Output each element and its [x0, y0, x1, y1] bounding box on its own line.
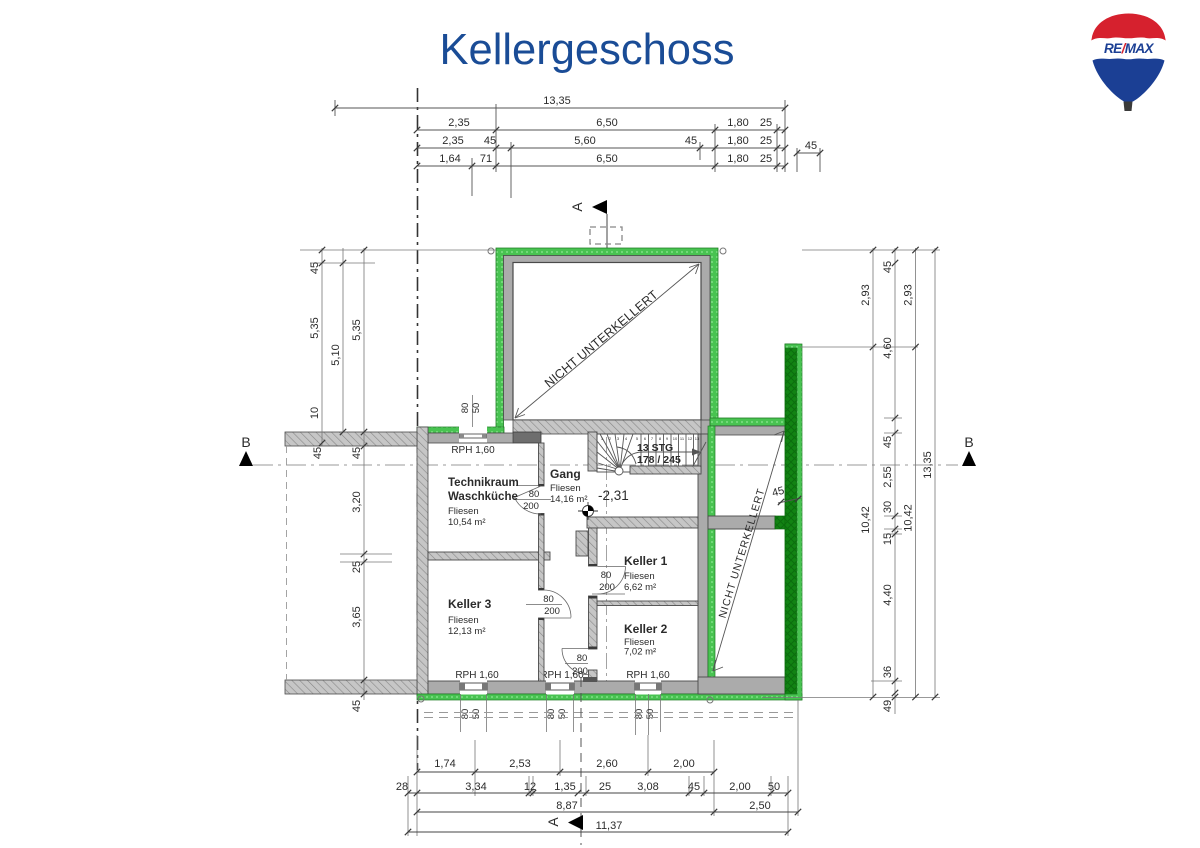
svg-text:2: 2 [609, 436, 612, 441]
svg-text:Technikraum: Technikraum [448, 477, 519, 489]
svg-text:80: 80 [577, 653, 588, 664]
svg-text:1,80: 1,80 [727, 117, 748, 129]
svg-text:10: 10 [309, 407, 321, 419]
svg-text:25: 25 [760, 117, 772, 129]
svg-text:6,62 m²: 6,62 m² [624, 582, 656, 593]
svg-text:8: 8 [659, 436, 662, 441]
svg-text:1,35: 1,35 [554, 781, 575, 793]
svg-text:13,35: 13,35 [543, 95, 571, 107]
svg-text:15: 15 [882, 533, 894, 545]
svg-text:45: 45 [351, 700, 363, 712]
svg-text:12,13 m²: 12,13 m² [448, 626, 486, 637]
svg-text:5: 5 [636, 436, 639, 441]
svg-text:45: 45 [688, 781, 700, 793]
svg-text:71: 71 [480, 153, 492, 165]
svg-text:2,53: 2,53 [509, 758, 530, 770]
svg-text:Fliesen: Fliesen [550, 483, 581, 494]
svg-text:2,50: 2,50 [749, 800, 770, 812]
svg-text:50: 50 [768, 781, 780, 793]
svg-text:13: 13 [695, 436, 700, 441]
svg-text:200: 200 [523, 501, 539, 512]
svg-text:Fliesen: Fliesen [448, 506, 479, 517]
svg-text:B: B [964, 434, 973, 450]
svg-text:4: 4 [625, 436, 628, 441]
svg-text:45: 45 [685, 135, 697, 147]
svg-text:36: 36 [882, 666, 894, 678]
svg-text:8,87: 8,87 [556, 800, 577, 812]
svg-text:10,42: 10,42 [860, 506, 872, 534]
svg-text:5,10: 5,10 [330, 344, 342, 365]
svg-text:25: 25 [599, 781, 611, 793]
svg-text:10,54 m²: 10,54 m² [448, 517, 486, 528]
svg-text:25: 25 [760, 135, 772, 147]
svg-text:30: 30 [882, 501, 894, 513]
svg-text:3,20: 3,20 [351, 491, 363, 512]
svg-text:178 / 245: 178 / 245 [637, 454, 681, 466]
svg-text:80: 80 [460, 403, 471, 414]
svg-text:4,40: 4,40 [882, 584, 894, 605]
svg-text:14,16 m²: 14,16 m² [550, 494, 588, 505]
svg-text:12: 12 [524, 781, 536, 793]
svg-text:11,37: 11,37 [596, 820, 623, 832]
svg-text:28: 28 [396, 781, 408, 793]
svg-text:45: 45 [309, 262, 321, 274]
svg-text:5,35: 5,35 [351, 319, 363, 340]
svg-text:45: 45 [882, 436, 894, 448]
svg-text:9: 9 [666, 436, 669, 441]
svg-text:6,50: 6,50 [596, 117, 617, 129]
svg-text:B: B [241, 434, 250, 450]
svg-text:RPH 1,60: RPH 1,60 [455, 670, 499, 681]
svg-text:13 STG: 13 STG [637, 442, 673, 454]
svg-text:2,55: 2,55 [882, 466, 894, 487]
svg-text:13,35: 13,35 [922, 451, 934, 479]
svg-text:2,60: 2,60 [596, 758, 617, 770]
svg-text:200: 200 [544, 606, 560, 617]
svg-text:2,00: 2,00 [673, 758, 694, 770]
svg-text:RPH 1,60: RPH 1,60 [451, 445, 495, 456]
svg-text:45: 45 [484, 135, 496, 147]
svg-text:11: 11 [680, 436, 685, 441]
svg-text:6: 6 [644, 436, 647, 441]
svg-text:2,35: 2,35 [442, 135, 463, 147]
svg-text:7: 7 [651, 436, 654, 441]
svg-text:Fliesen: Fliesen [448, 615, 479, 626]
svg-text:Fliesen: Fliesen [624, 571, 655, 582]
svg-text:200: 200 [572, 666, 588, 677]
svg-text:45: 45 [351, 447, 363, 459]
svg-text:80: 80 [543, 594, 554, 605]
svg-text:A: A [569, 202, 585, 212]
svg-text:2,93: 2,93 [903, 284, 915, 305]
svg-text:12: 12 [688, 436, 693, 441]
svg-text:10: 10 [673, 436, 678, 441]
svg-text:5,35: 5,35 [309, 317, 321, 338]
svg-text:2,93: 2,93 [860, 284, 872, 305]
svg-text:50: 50 [471, 403, 482, 414]
svg-text:4,60: 4,60 [882, 337, 894, 358]
svg-text:3,08: 3,08 [637, 781, 658, 793]
svg-text:Gang: Gang [550, 467, 581, 481]
svg-text:Keller 1: Keller 1 [624, 554, 668, 568]
svg-text:2,00: 2,00 [729, 781, 750, 793]
svg-text:80: 80 [529, 489, 540, 500]
svg-text:6,50: 6,50 [596, 153, 617, 165]
svg-text:5,60: 5,60 [574, 135, 595, 147]
svg-text:1,74: 1,74 [434, 758, 455, 770]
svg-text:7,02 m²: 7,02 m² [624, 647, 656, 658]
svg-text:3,34: 3,34 [465, 781, 486, 793]
svg-text:25: 25 [351, 561, 363, 573]
svg-text:2,35: 2,35 [448, 117, 469, 129]
svg-text:Keller 2: Keller 2 [624, 622, 668, 636]
svg-text:RPH 1,60: RPH 1,60 [626, 670, 670, 681]
svg-text:NICHT UNTERKELLERT: NICHT UNTERKELLERT [717, 487, 768, 620]
svg-text:3,65: 3,65 [351, 606, 363, 627]
svg-text:1,64: 1,64 [439, 153, 460, 165]
svg-text:45: 45 [805, 140, 817, 152]
svg-text:1,80: 1,80 [727, 135, 748, 147]
svg-text:45: 45 [312, 447, 324, 459]
svg-text:45: 45 [882, 261, 894, 273]
svg-text:-2,31: -2,31 [598, 488, 629, 503]
svg-text:3: 3 [617, 436, 620, 441]
svg-text:25: 25 [760, 153, 772, 165]
svg-text:Keller 3: Keller 3 [448, 597, 492, 611]
svg-text:1,80: 1,80 [727, 153, 748, 165]
svg-text:A: A [545, 817, 561, 827]
svg-text:49: 49 [882, 700, 894, 712]
svg-text:45: 45 [771, 485, 786, 500]
svg-text:10,42: 10,42 [903, 504, 915, 532]
svg-text:Waschküche: Waschküche [448, 491, 518, 503]
svg-text:200: 200 [599, 582, 615, 593]
svg-text:RE/MAX: RE/MAX [1104, 41, 1155, 56]
svg-text:Kellergeschoss: Kellergeschoss [440, 26, 735, 74]
svg-text:80: 80 [601, 570, 612, 581]
